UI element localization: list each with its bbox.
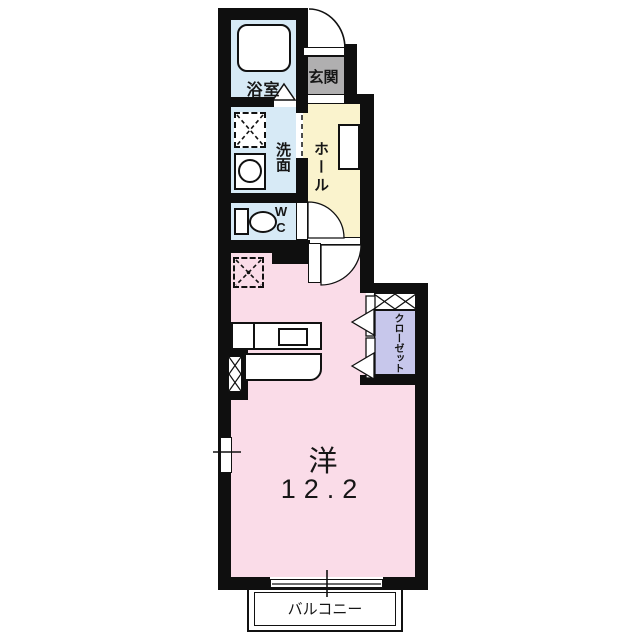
kitchen-counter	[231, 322, 322, 350]
toilet-tank-icon	[234, 208, 249, 235]
main-room-size: 12.2	[231, 474, 415, 505]
wall-bottom-right	[383, 577, 428, 590]
entrance-door-leaf	[303, 47, 345, 56]
balcony-label: バルコニー	[247, 598, 403, 619]
bathroom-label: 浴室	[231, 76, 296, 100]
sink-bowl-icon	[238, 159, 262, 183]
closet-shelf-hatch	[374, 293, 416, 310]
wall-washroom-wc	[231, 193, 296, 203]
floor-plan: 浴室 洗面 W C 玄関 ホール クローゼット 洋 12.2 バルコニー	[0, 0, 634, 640]
window-symbol-left-louver	[228, 356, 242, 392]
main-door-leaf	[308, 243, 321, 283]
entrance-label: 玄関	[303, 66, 344, 87]
door-swing-arc-entrance	[309, 9, 345, 49]
wall-closet-right	[416, 283, 428, 385]
kitchen-counter-divider	[253, 322, 255, 350]
wall-right-lower	[415, 385, 428, 590]
wc-label: W C	[268, 204, 294, 236]
wall-left	[218, 8, 231, 590]
kitchen-counter-lower	[244, 353, 322, 381]
wall-hall-divider-upper	[296, 8, 308, 113]
refrigerator-space-symbol	[233, 257, 264, 288]
stove-symbol	[278, 328, 308, 346]
entrance-threshold	[303, 94, 344, 104]
wall-hall-right	[360, 94, 374, 283]
wc-label-c: C	[276, 220, 285, 235]
washroom-label: 洗面	[267, 126, 293, 188]
wc-label-w: W	[275, 204, 287, 219]
bathtub-icon	[237, 24, 291, 72]
hall-label: ホール	[311, 118, 331, 218]
window-symbol-bottom	[270, 579, 383, 588]
wall-closet-bottom	[360, 375, 428, 385]
wall-bottom-left	[218, 577, 270, 590]
shoe-cabinet	[338, 124, 360, 170]
closet-label: クローゼット	[385, 312, 405, 374]
wall-top	[218, 8, 308, 20]
washing-machine-symbol	[234, 112, 266, 148]
wall-hall-divider-lower	[296, 158, 308, 203]
wall-stub	[272, 253, 310, 264]
wc-door-leaf	[296, 202, 308, 240]
wall-below-wc	[218, 240, 310, 253]
